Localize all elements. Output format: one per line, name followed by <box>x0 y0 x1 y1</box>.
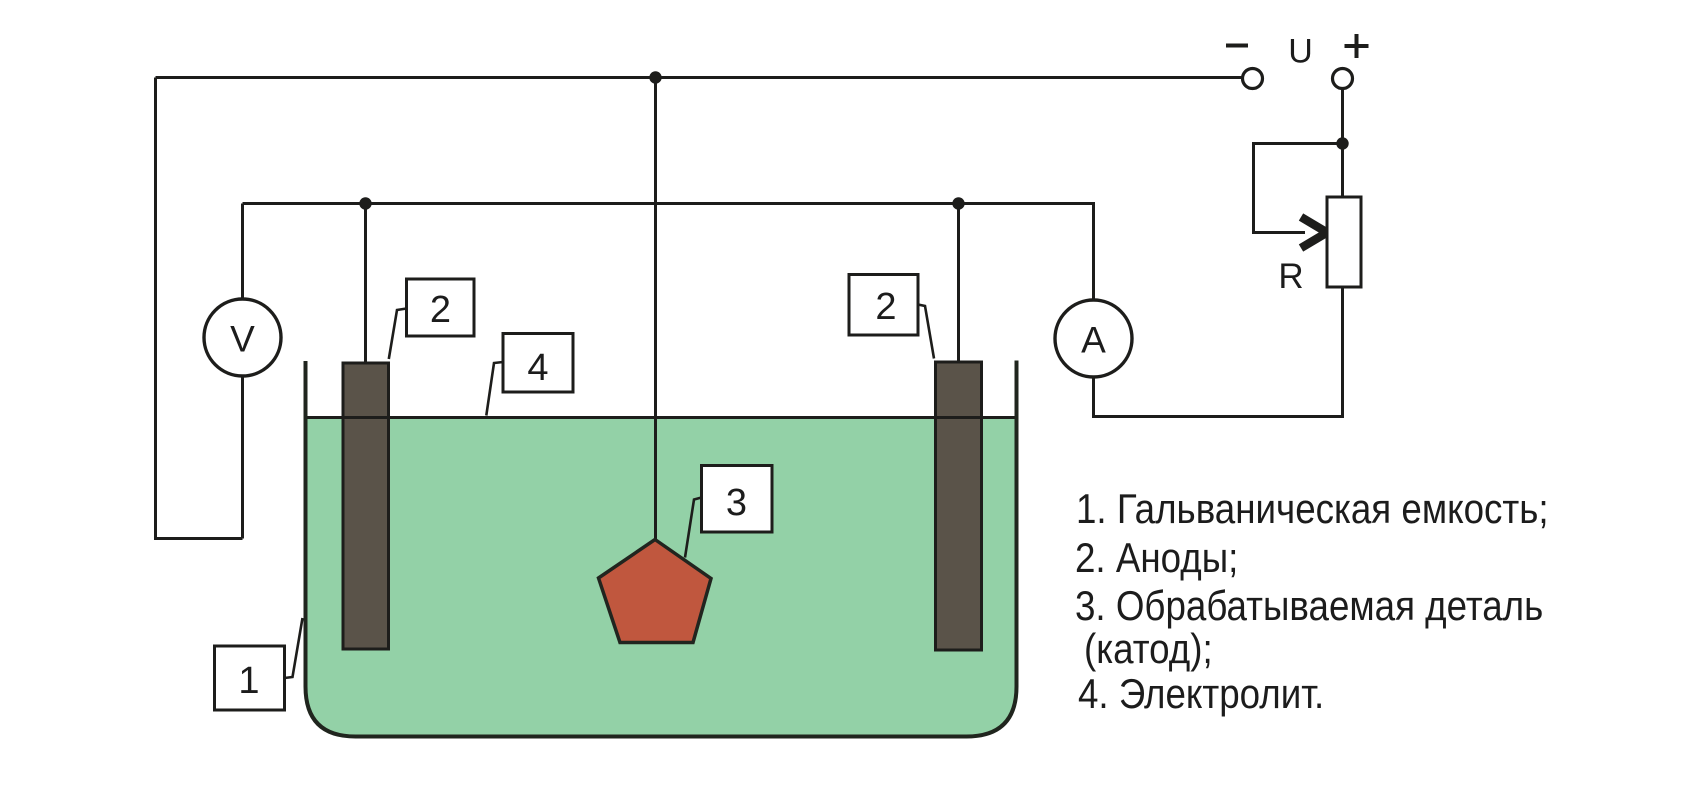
svg-text:4. Электролит.: 4. Электролит. <box>1078 671 1324 718</box>
svg-text:(катод);: (катод); <box>1084 626 1213 673</box>
svg-text:2: 2 <box>430 289 451 331</box>
svg-text:3. Обрабатываемая деталь: 3. Обрабатываемая деталь <box>1075 583 1543 630</box>
svg-text:2: 2 <box>875 286 896 328</box>
svg-text:1. Гальваническая емкость;: 1. Гальваническая емкость; <box>1076 486 1549 533</box>
svg-text:1: 1 <box>238 660 259 702</box>
svg-text:V: V <box>230 319 255 360</box>
svg-text:2. Аноды;: 2. Аноды; <box>1075 535 1238 582</box>
svg-text:R: R <box>1278 257 1303 296</box>
svg-text:U: U <box>1288 33 1313 71</box>
svg-text:A: A <box>1081 320 1106 361</box>
svg-text:3: 3 <box>726 482 747 524</box>
svg-text:4: 4 <box>527 347 548 389</box>
